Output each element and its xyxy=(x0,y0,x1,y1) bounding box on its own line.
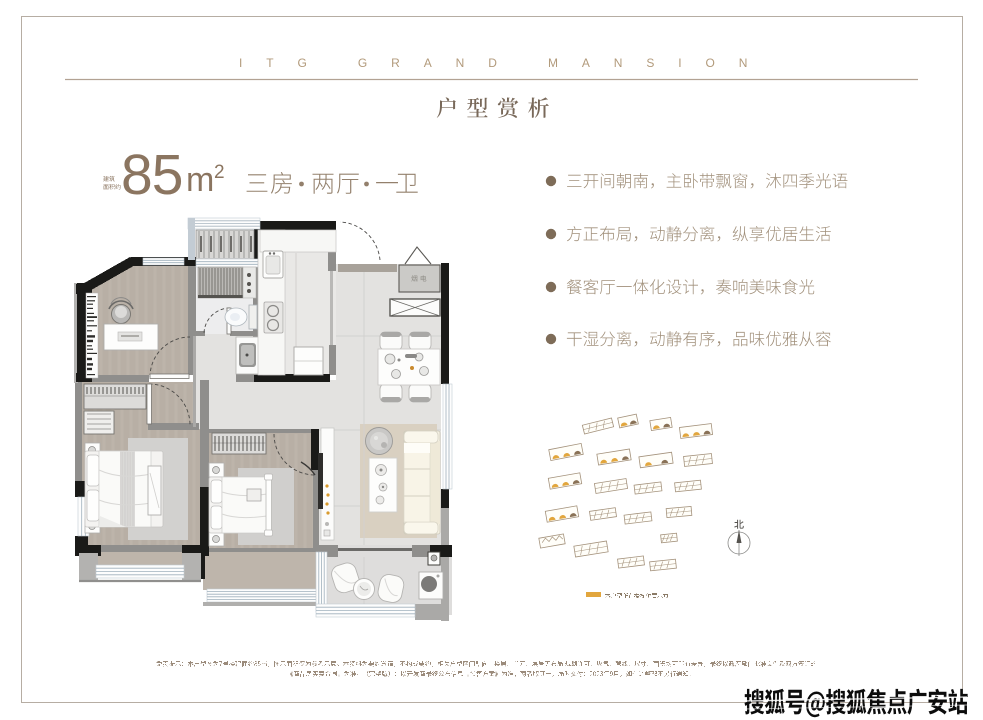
svg-text:85: 85 xyxy=(121,143,182,207)
svg-text:2: 2 xyxy=(214,162,225,183)
svg-text:ITG GRAND MANSION: ITG GRAND MANSION xyxy=(239,56,771,70)
svg-text:m: m xyxy=(186,161,214,199)
